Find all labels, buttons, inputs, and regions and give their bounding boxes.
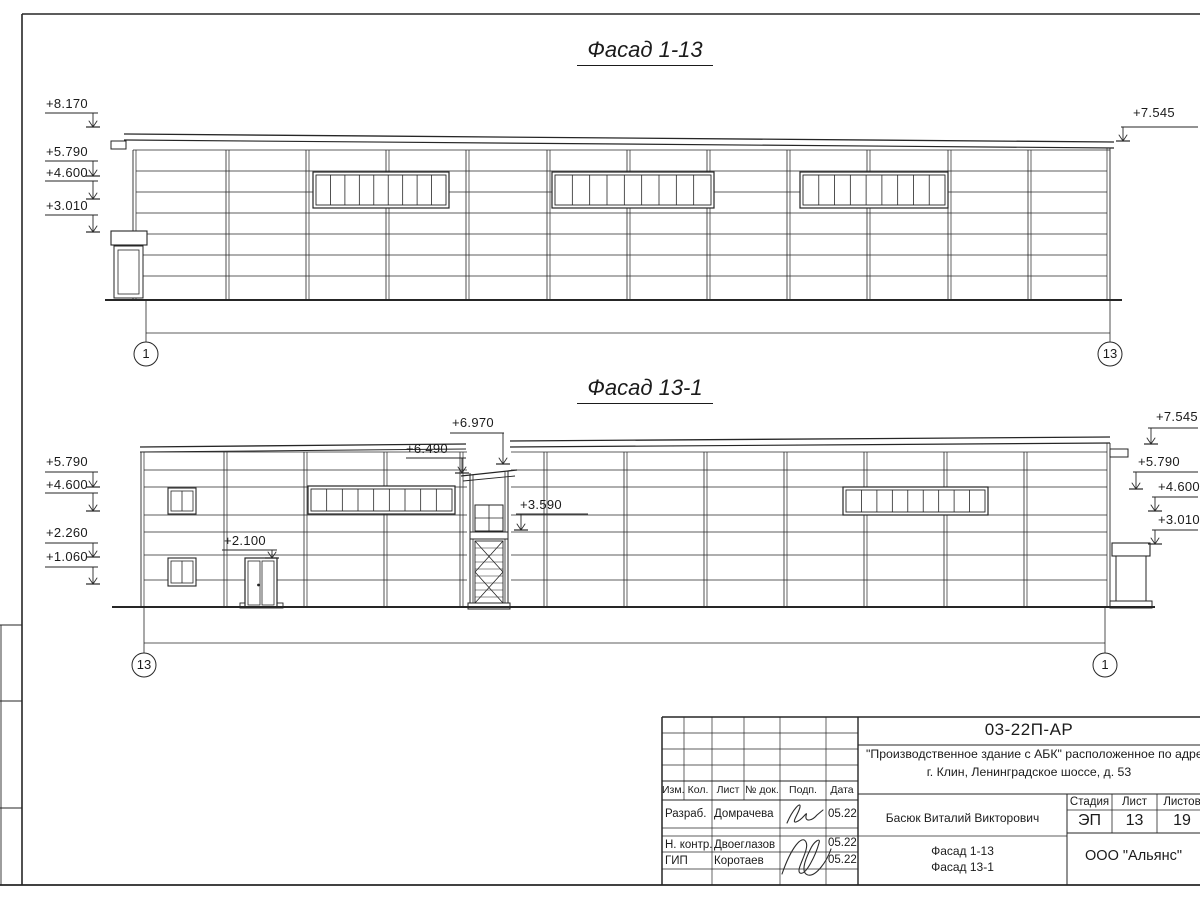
sheet-label: Лист xyxy=(1112,796,1157,809)
signer-name: Домрачева xyxy=(714,808,774,821)
elevation-mark: +7.545 xyxy=(1156,410,1198,424)
elevation-mark: +4.600 xyxy=(46,478,88,492)
rev-col-header: Изм. xyxy=(662,785,684,797)
stage-value: ЭП xyxy=(1067,812,1112,830)
elevation-mark: +8.170 xyxy=(46,97,88,111)
rev-col-header: Лист xyxy=(712,785,744,797)
sheet-value: 13 xyxy=(1112,812,1157,830)
signer-date: 05.22 xyxy=(828,854,857,867)
elevation-mark: +3.590 xyxy=(520,498,562,512)
signer-role: ГИП xyxy=(665,855,688,868)
elevation-mark: +5.790 xyxy=(1138,455,1180,469)
axis-bubble-label: 1 xyxy=(134,347,158,361)
elevation-mark: +6.490 xyxy=(406,442,448,456)
sheet-title-line2: Фасад 13-1 xyxy=(858,861,1067,874)
elevation-mark: +2.100 xyxy=(224,534,266,548)
elevation-mark: +4.600 xyxy=(1158,480,1200,494)
signer-date: 05.22 xyxy=(828,837,857,850)
company-name: ООО "Альянс" xyxy=(1067,849,1200,865)
sheets-value: 19 xyxy=(1157,812,1200,830)
axis-bubble-label: 1 xyxy=(1093,658,1117,672)
facade1-title: Фасад 1-13 xyxy=(555,38,735,66)
signer-role: Н. контр. xyxy=(665,839,712,852)
elevation-mark: +3.010 xyxy=(46,199,88,213)
rev-col-header: Кол. xyxy=(684,785,712,797)
signer-name: Двоеглазов xyxy=(714,839,775,852)
elevation-mark: +3.010 xyxy=(1158,513,1200,527)
rev-col-header: Дата xyxy=(826,785,858,797)
axis-bubble-label: 13 xyxy=(1098,347,1122,361)
elevation-mark: +1.060 xyxy=(46,550,88,564)
facade2-title: Фасад 13-1 xyxy=(555,376,735,404)
axis-bubble-label: 13 xyxy=(132,658,156,672)
signer-name: Коротаев xyxy=(714,855,764,868)
stage-label: Стадия xyxy=(1067,796,1112,809)
drawing-sheet: Фасад 1-13 +8.170 +5.790 +4.600 +3.010 +… xyxy=(0,0,1200,900)
elevation-mark: +6.970 xyxy=(452,416,494,430)
doc-number: 03-22П-АР xyxy=(858,721,1200,740)
sheet-title-line1: Фасад 1-13 xyxy=(858,845,1067,858)
signer-date: 05.22 xyxy=(828,808,857,821)
rev-col-header: Подп. xyxy=(780,785,826,797)
project-title-line1: "Производственное здание с АБК" располож… xyxy=(866,748,1200,762)
elevation-mark: +5.790 xyxy=(46,455,88,469)
signer-role: Разраб. xyxy=(665,808,706,821)
elevation-mark: +5.790 xyxy=(46,145,88,159)
sheets-label: Листов xyxy=(1157,796,1200,809)
project-title-line2: г. Клин, Ленинградское шоссе, д. 53 xyxy=(858,766,1200,780)
rev-col-header: № док. xyxy=(744,785,780,797)
elevation-mark: +2.260 xyxy=(46,526,88,540)
elevation-mark: +7.545 xyxy=(1133,106,1175,120)
chief-name: Басюк Виталий Викторович xyxy=(858,812,1067,825)
elevation-mark: +4.600 xyxy=(46,166,88,180)
